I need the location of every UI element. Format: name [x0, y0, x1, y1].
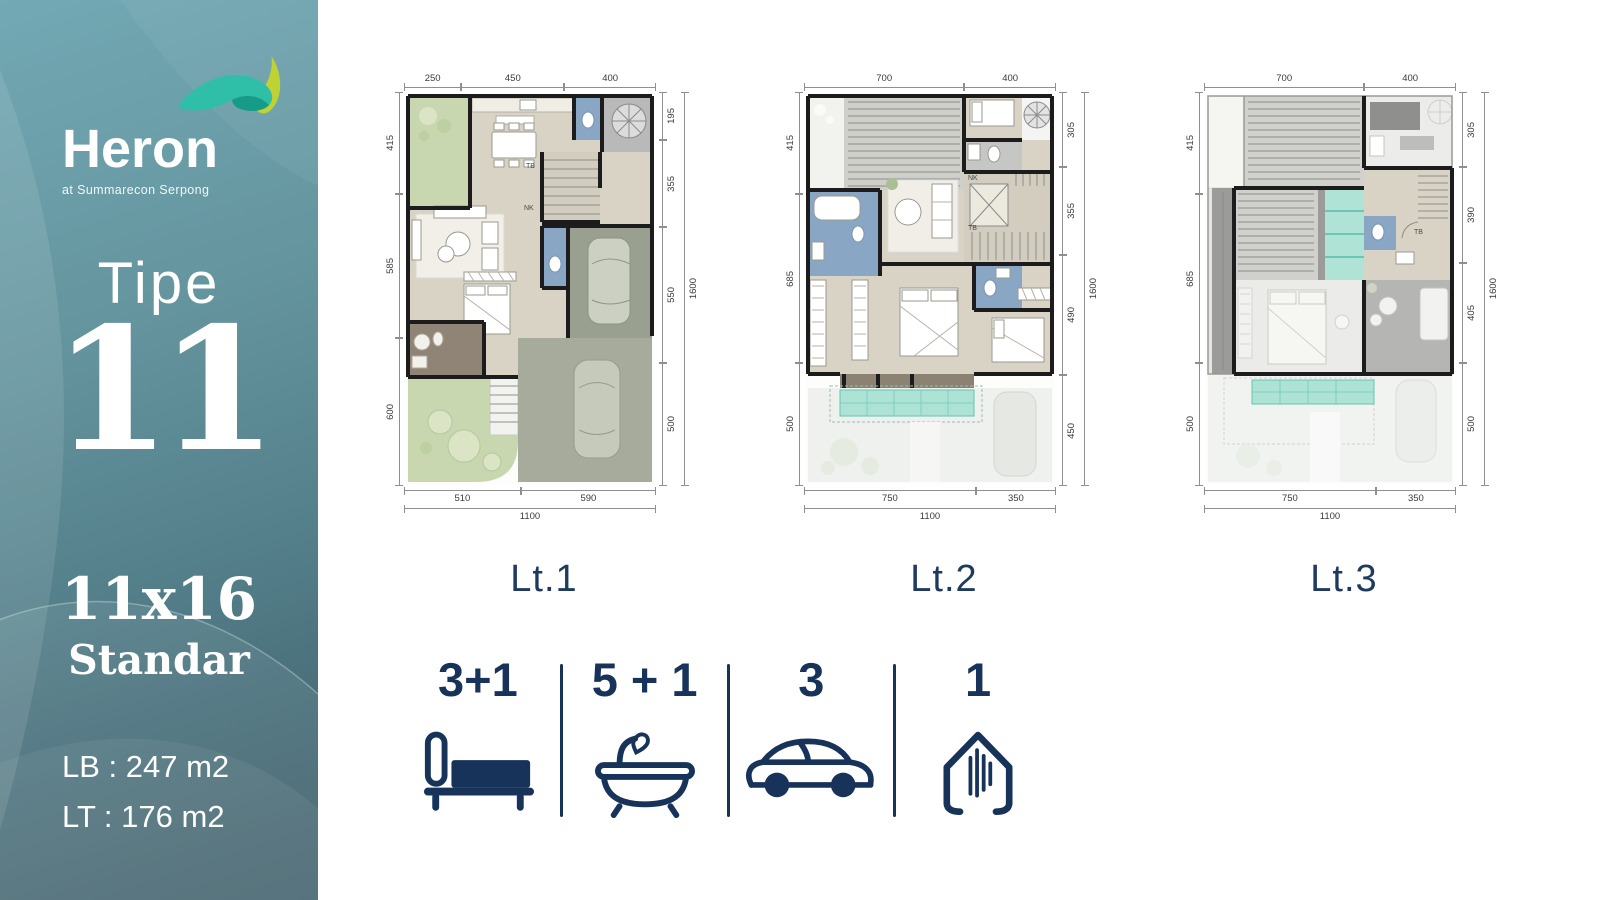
- stair-label: TB: [1414, 229, 1423, 236]
- dim-right-total-lt1: 1600: [684, 92, 700, 486]
- variant-label: Standar: [0, 636, 318, 684]
- dim-value: 355: [666, 176, 677, 192]
- floorplan-card-lt3: 700 400 415 685 500 305 390 405 500 1600…: [1178, 56, 1510, 616]
- dim-value: 510: [454, 493, 470, 504]
- dim-value: 550: [666, 287, 677, 303]
- bed-icon: [419, 722, 537, 821]
- dim-value: 500: [666, 416, 677, 432]
- dim-bottom-lt3: 750 350: [1204, 490, 1456, 506]
- dim-bottom-lt1: 510 590: [404, 490, 656, 506]
- feature-summary-row: 3+1 5 + 1: [396, 650, 1060, 825]
- dim-value: 490: [1066, 307, 1077, 323]
- dim-value: 700: [1276, 73, 1292, 84]
- dim-value: 750: [882, 493, 898, 504]
- dim-value: 1100: [520, 511, 540, 522]
- dim-right-lt1: 195 355 550 500: [662, 92, 678, 486]
- size-label: 11x16: [0, 565, 318, 633]
- stair-label: NK: [524, 205, 534, 212]
- dim-right-lt2: 305 355 490 450: [1062, 92, 1078, 486]
- dim-top-lt2: 700 400: [804, 70, 1056, 88]
- dim-value: 1100: [920, 511, 940, 522]
- dim-value: 500: [1185, 416, 1196, 432]
- dim-value: 750: [1282, 493, 1298, 504]
- dim-value: 415: [385, 135, 396, 151]
- dim-value: 405: [1466, 305, 1477, 321]
- dim-value: 450: [1066, 423, 1077, 439]
- dim-value: 250: [425, 73, 441, 84]
- dim-value: 1600: [1488, 278, 1499, 299]
- dim-value: 400: [1402, 73, 1418, 84]
- dim-value: 700: [876, 73, 892, 84]
- sidebar: Heron at Summarecon Serpong Tipe 11 11x1…: [0, 0, 318, 900]
- floorplan-lt1-graphic: TB NK: [404, 92, 656, 486]
- feature-bathrooms: 5 + 1: [563, 650, 727, 825]
- floor-label-lt2: Lt.2: [778, 558, 1110, 601]
- feature-carports: 3: [730, 650, 894, 825]
- dim-left-lt1: 415 585 600: [380, 92, 400, 486]
- area-specs: LB : 247 m2 LT : 176 m2: [62, 742, 229, 842]
- feature-house: 1: [896, 650, 1060, 825]
- dim-value: 590: [580, 493, 596, 504]
- stair-label: TB: [526, 163, 535, 170]
- dim-right-total-lt2: 1600: [1084, 92, 1100, 486]
- dim-bottom-total-lt2: 1100: [804, 508, 1056, 524]
- land-area: LT : 176 m2: [62, 792, 229, 842]
- stair-label: NK: [968, 175, 978, 182]
- floorplan-lt2-graphic: NK TB: [804, 92, 1056, 486]
- brand-tagline: at Summarecon Serpong: [62, 183, 277, 197]
- feature-bedrooms: 3+1: [396, 650, 560, 825]
- type-number: 11: [0, 305, 318, 475]
- dim-value: 685: [1185, 271, 1196, 287]
- dim-left-lt3: 415 685 500: [1180, 92, 1200, 486]
- dim-value: 400: [602, 73, 618, 84]
- dim-value: 1100: [1320, 511, 1340, 522]
- house-count: 1: [965, 650, 991, 710]
- dim-value: 1600: [1088, 278, 1099, 299]
- stair-label: TB: [968, 225, 977, 232]
- floor-label-lt3: Lt.3: [1178, 558, 1510, 601]
- floor-label-lt1: Lt.1: [378, 558, 710, 601]
- bathtub-icon: [586, 722, 704, 825]
- dim-value: 390: [1466, 207, 1477, 223]
- floorplan-card-lt2: 700 400 415 685 500 305 355 490 450 1600…: [778, 56, 1110, 616]
- dim-value: 415: [785, 135, 796, 151]
- dim-top-lt1: 250 450 400: [404, 70, 656, 88]
- dim-value: 585: [385, 258, 396, 274]
- floorplan-lt3-graphic: TB: [1204, 92, 1456, 486]
- dim-value: 1600: [688, 278, 699, 299]
- dim-value: 685: [785, 271, 796, 287]
- carport-count: 3: [798, 650, 824, 714]
- dim-value: 400: [1002, 73, 1018, 84]
- heron-leaf-icon: [175, 54, 285, 128]
- dim-bottom-lt2: 750 350: [804, 490, 1056, 506]
- dim-value: 195: [666, 108, 677, 124]
- dim-bottom-total-lt3: 1100: [1204, 508, 1456, 524]
- bedroom-count: 3+1: [438, 650, 518, 714]
- dim-value: 415: [1185, 135, 1196, 151]
- dim-value: 500: [785, 416, 796, 432]
- dim-right-lt3: 305 390 405 500: [1462, 92, 1478, 486]
- dim-value: 305: [1066, 122, 1077, 138]
- floorplan-card-lt1: 250 450 400 415 585 600 195 355 550 500 …: [378, 56, 710, 616]
- brand-logo: Heron at Summarecon Serpong: [62, 56, 277, 197]
- house-icon: [926, 718, 1030, 829]
- dim-value: 500: [1466, 416, 1477, 432]
- brochure-page: Heron at Summarecon Serpong Tipe 11 11x1…: [0, 0, 1600, 900]
- dim-right-total-lt3: 1600: [1484, 92, 1500, 486]
- dim-left-lt2: 415 685 500: [780, 92, 800, 486]
- bathroom-count: 5 + 1: [592, 650, 698, 714]
- dim-value: 450: [505, 73, 521, 84]
- dim-value: 355: [1066, 203, 1077, 219]
- dim-value: 350: [1408, 493, 1424, 504]
- dim-value: 305: [1466, 122, 1477, 138]
- dim-top-lt3: 700 400: [1204, 70, 1456, 88]
- dim-value: 350: [1008, 493, 1024, 504]
- dim-value: 600: [385, 404, 396, 420]
- dim-bottom-total-lt1: 1100: [404, 508, 656, 524]
- car-icon: [740, 722, 882, 815]
- building-area: LB : 247 m2: [62, 742, 229, 792]
